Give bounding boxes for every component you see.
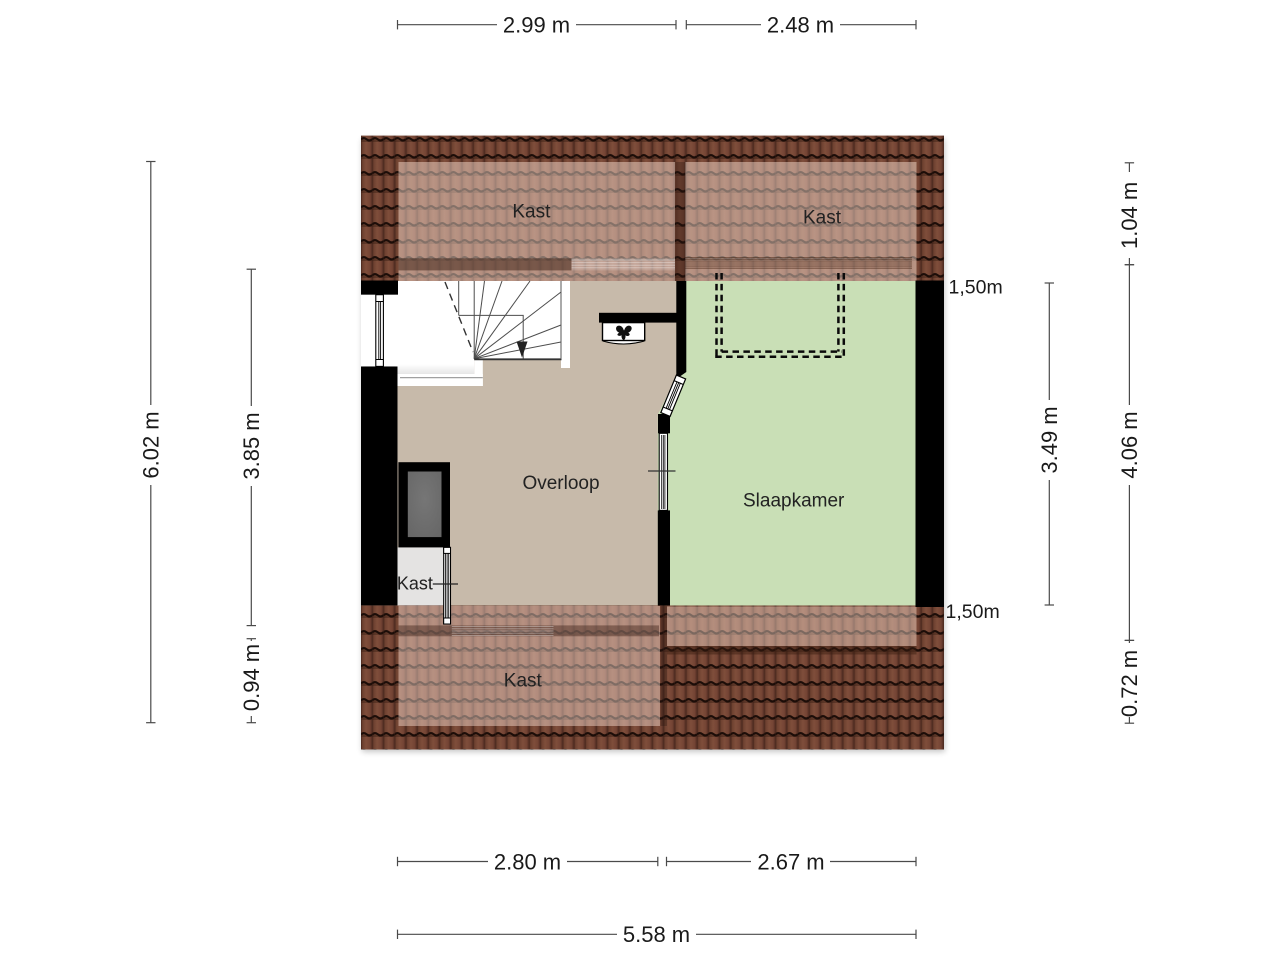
svg-text:2.48 m: 2.48 m <box>767 13 834 38</box>
svg-text:3.85 m: 3.85 m <box>239 412 264 479</box>
svg-text:1,50m: 1,50m <box>949 277 1003 299</box>
svg-text:3.49 m: 3.49 m <box>1037 406 1062 473</box>
svg-text:0.72 m: 0.72 m <box>1117 650 1142 717</box>
svg-text:Slaapkamer: Slaapkamer <box>743 491 845 512</box>
svg-text:1,50m: 1,50m <box>946 601 1000 623</box>
svg-text:5.58 m: 5.58 m <box>623 922 690 947</box>
svg-text:2.67 m: 2.67 m <box>757 849 824 874</box>
svg-text:2.80 m: 2.80 m <box>494 849 561 874</box>
svg-text:6.02 m: 6.02 m <box>139 411 164 478</box>
svg-text:2.99 m: 2.99 m <box>503 13 570 38</box>
svg-text:Kast: Kast <box>803 208 842 229</box>
svg-text:1.04 m: 1.04 m <box>1117 182 1142 249</box>
svg-text:0.94 m: 0.94 m <box>239 644 264 711</box>
svg-text:Kast: Kast <box>504 670 543 691</box>
svg-text:Overloop: Overloop <box>522 473 599 494</box>
svg-text:Kast: Kast <box>397 574 433 594</box>
svg-text:4.06 m: 4.06 m <box>1117 411 1142 478</box>
svg-text:Kast: Kast <box>512 202 551 223</box>
